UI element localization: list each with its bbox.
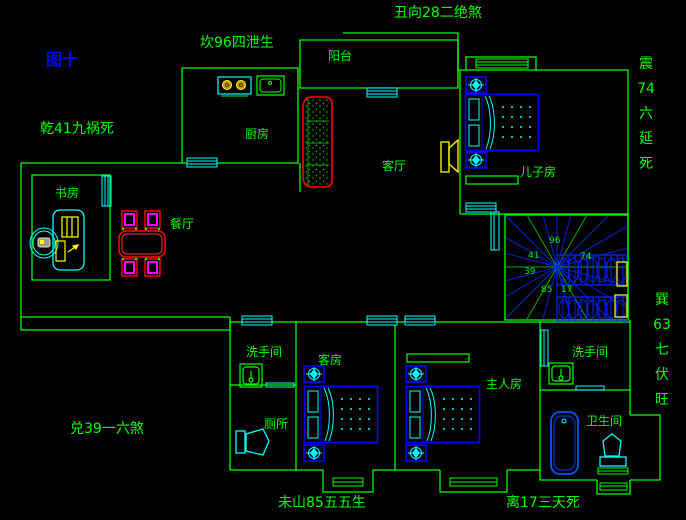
dining-chair xyxy=(122,211,137,230)
stair-number-39: 39 xyxy=(524,267,535,277)
floor-plan-canvas: 图十 坎96四泄生 丑向28二绝煞 乾41九祸死 兑39一六煞 震 74 六 延… xyxy=(0,0,686,520)
room-label-living: 客厅 xyxy=(382,160,406,173)
bed-sons-room xyxy=(466,95,539,151)
nightstand-compass-icon xyxy=(466,152,486,168)
dining-chair xyxy=(145,258,160,276)
figure-title: 图十 xyxy=(46,46,78,70)
nightstand-compass-icon xyxy=(466,77,486,93)
nightstand-compass-icon xyxy=(406,366,426,382)
stove-icon xyxy=(218,77,251,96)
shelf-master-room xyxy=(407,354,469,362)
bay-window-3 xyxy=(600,483,627,490)
bed-guest-room xyxy=(305,387,378,443)
stair-number-74: 74 xyxy=(580,252,591,262)
dining-chair xyxy=(145,211,160,230)
corridor-window-1 xyxy=(242,316,272,325)
stair-door xyxy=(491,212,499,250)
dining-chairs xyxy=(122,211,160,276)
washbasin-icon xyxy=(549,363,573,384)
dining-chair xyxy=(122,258,137,276)
fengshui-label-xun: 巽 63 七 伏 旺 xyxy=(649,288,675,413)
stair-number-96: 96 xyxy=(549,236,560,246)
room-label-guest: 客房 xyxy=(318,354,342,367)
room-label-study: 书房 xyxy=(55,187,79,200)
bathtub-icon xyxy=(551,412,578,474)
cabinet-sons-room xyxy=(466,176,518,184)
room-label-bathroom: 卫生间 xyxy=(586,415,622,428)
room-label-washroom-left: 洗手间 xyxy=(246,346,282,359)
fengshui-label-zhen: 震 74 六 延 死 xyxy=(633,52,659,177)
kitchen-window xyxy=(187,158,217,167)
room-label-master: 主人房 xyxy=(486,378,522,391)
stair-number-17: 17 xyxy=(561,285,572,295)
stair-number-41: 41 xyxy=(528,251,539,261)
dining-table xyxy=(119,231,165,257)
fengshui-label-kan: 坎96四泄生 xyxy=(200,36,274,51)
nightstand-compass-icon xyxy=(406,445,426,461)
fengshui-label-qian: 乾41九祸死 xyxy=(40,122,114,137)
room-label-washroom-right: 洗手间 xyxy=(572,346,608,359)
nightstand-compass-icon xyxy=(304,366,324,382)
room-label-balcony: 阳台 xyxy=(328,50,352,63)
computer-icon xyxy=(56,217,78,261)
room-label-kitchen: 厨房 xyxy=(245,128,269,141)
room-label-toilet: 厕所 xyxy=(264,418,288,431)
corridor-window-3 xyxy=(405,316,435,325)
speaker-icon xyxy=(441,140,458,172)
fengshui-label-li: 离17三天死 xyxy=(506,496,580,511)
fengshui-label-dui: 兑39一六煞 xyxy=(70,422,144,437)
study-desk xyxy=(30,210,84,270)
fengshui-label-chou: 丑向28二绝煞 xyxy=(394,6,482,21)
sons-room-window xyxy=(466,203,496,212)
washbasin-icon xyxy=(240,364,262,387)
room-label-sons-room: 儿子房 xyxy=(520,166,556,179)
toilet-icon xyxy=(236,429,269,455)
toilet-icon xyxy=(598,434,628,474)
sofa xyxy=(303,97,332,187)
bay-window-1 xyxy=(333,478,363,486)
stair-number-85: 85 xyxy=(541,285,552,295)
master-east-window xyxy=(541,330,548,366)
fengshui-label-weishan: 未山85五五生 xyxy=(278,496,366,511)
balcony-window xyxy=(367,88,397,97)
kitchen-sink-icon xyxy=(257,76,284,95)
bed-master-room xyxy=(407,387,480,443)
nightstand-compass-icon xyxy=(304,445,324,461)
bay-window-top xyxy=(476,59,528,68)
room-label-dining: 餐厅 xyxy=(170,218,194,231)
bay-window-2 xyxy=(450,478,497,486)
corridor-window-2 xyxy=(367,316,397,325)
